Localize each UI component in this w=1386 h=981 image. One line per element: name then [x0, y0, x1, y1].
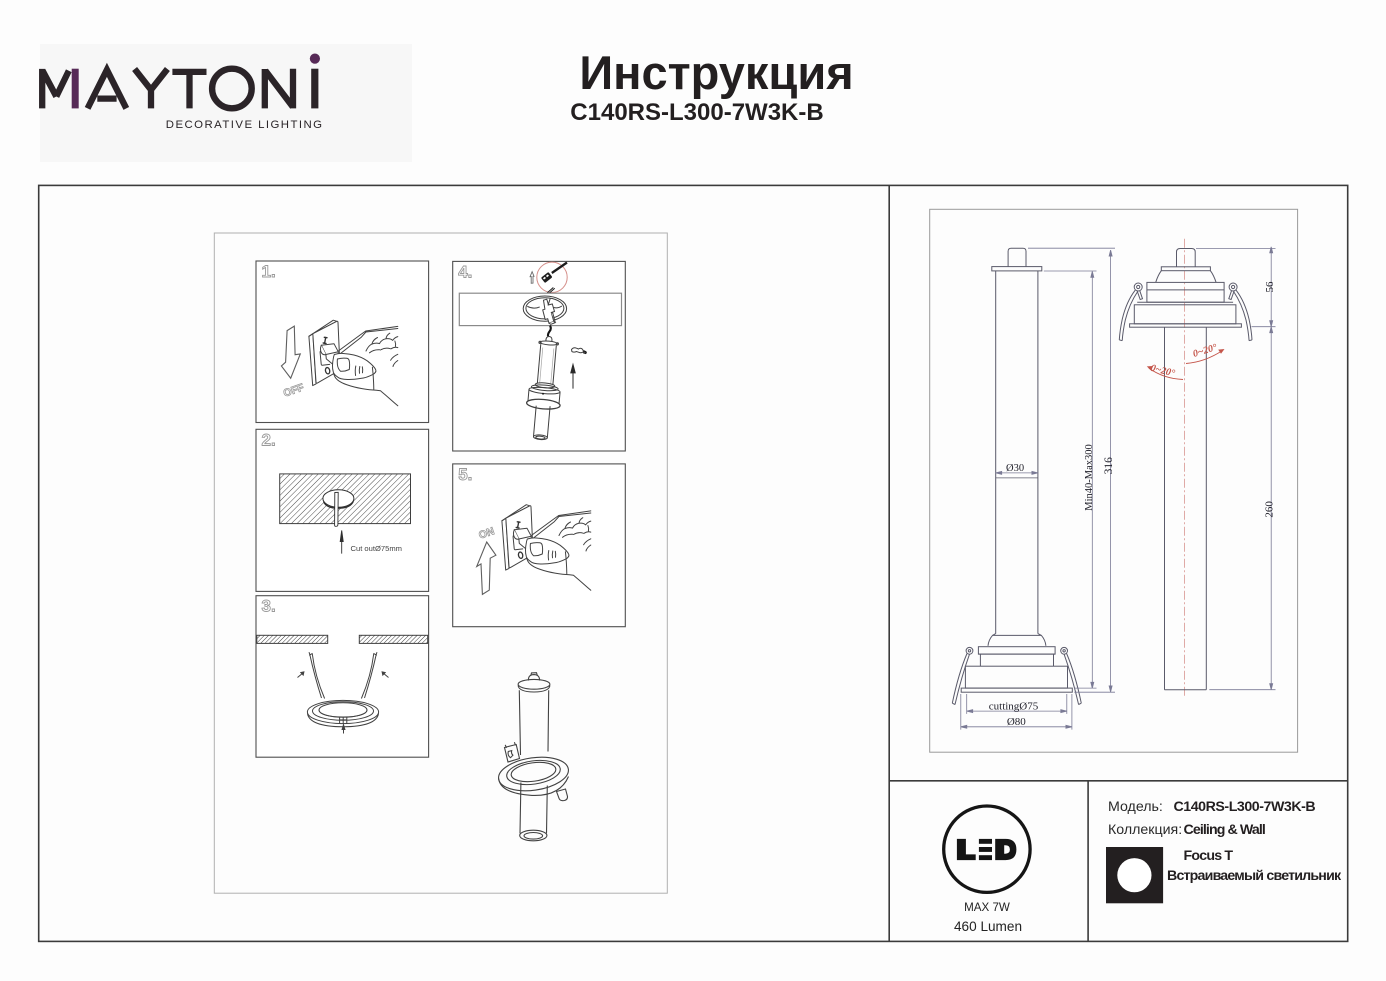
svg-text:1.: 1.: [262, 262, 276, 281]
svg-text:5.: 5.: [458, 465, 472, 484]
svg-text:Ø30: Ø30: [1006, 463, 1024, 474]
svg-text:Min40-Max300: Min40-Max300: [1084, 444, 1095, 511]
svg-text:260: 260: [1264, 501, 1276, 518]
svg-text:316: 316: [1103, 457, 1115, 475]
svg-text:cuttingØ75: cuttingØ75: [989, 700, 1039, 712]
svg-text:3.: 3.: [262, 597, 276, 616]
svg-text:56: 56: [1264, 281, 1276, 293]
svg-text:0~20°: 0~20°: [1149, 363, 1176, 380]
svg-text:Ø80: Ø80: [1007, 716, 1026, 728]
svg-text:4.: 4.: [458, 262, 472, 281]
svg-text:2.: 2.: [262, 430, 276, 449]
svg-text:Cut outØ75mm: Cut outØ75mm: [351, 544, 403, 553]
svg-text:0~20°: 0~20°: [1192, 342, 1219, 360]
